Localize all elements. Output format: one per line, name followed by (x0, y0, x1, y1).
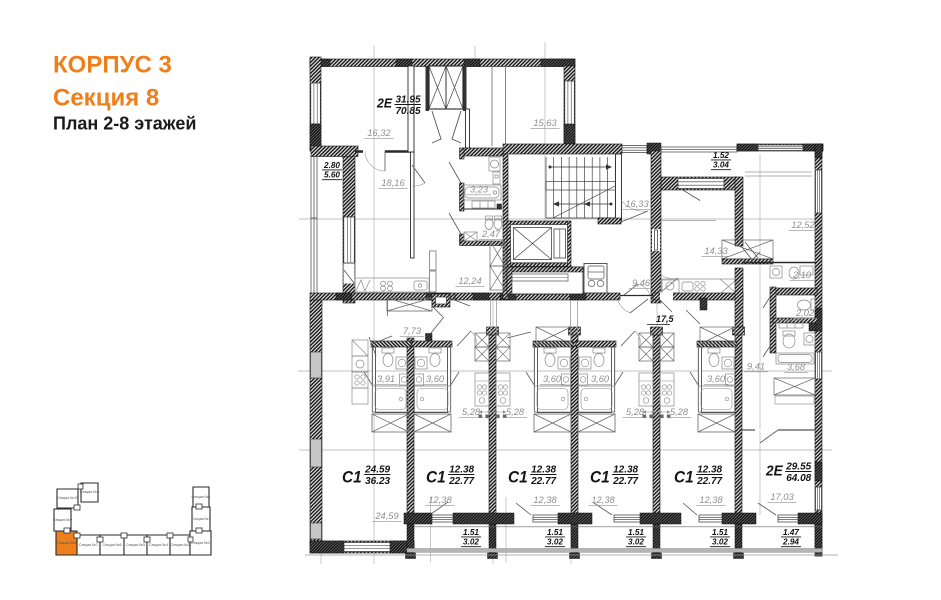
svg-text:3,60: 3,60 (543, 374, 562, 384)
svg-text:1.51: 1.51 (547, 528, 563, 537)
svg-text:3.02: 3.02 (628, 538, 644, 547)
svg-text:3.02: 3.02 (547, 538, 563, 547)
svg-text:12,24: 12,24 (458, 276, 481, 286)
svg-text:22.77: 22.77 (530, 476, 556, 487)
svg-text:2.94: 2.94 (782, 538, 799, 547)
svg-text:3.04: 3.04 (713, 161, 729, 170)
svg-text:3,91: 3,91 (377, 374, 395, 384)
svg-text:3.02: 3.02 (712, 538, 728, 547)
svg-text:9,46: 9,46 (632, 278, 651, 288)
svg-text:12.38: 12.38 (531, 464, 556, 475)
svg-text:1.51: 1.51 (463, 528, 479, 537)
svg-text:16,32: 16,32 (367, 128, 391, 138)
svg-text:КОРПУС 3: КОРПУС 3 (53, 52, 172, 79)
svg-text:С1: С1 (674, 467, 694, 486)
svg-text:14,33: 14,33 (704, 246, 728, 256)
svg-text:Секция №1: Секция №1 (191, 517, 210, 521)
svg-text:22.77: 22.77 (696, 476, 722, 487)
svg-text:12.38: 12.38 (449, 464, 474, 475)
svg-text:План 2-8 этажей: План 2-8 этажей (53, 114, 196, 134)
svg-text:24,59: 24,59 (374, 511, 398, 521)
svg-text:Секция №7: Секция №7 (79, 543, 98, 547)
svg-text:Секция №8: Секция №8 (57, 541, 76, 545)
svg-text:Секция №4: Секция №4 (149, 543, 168, 547)
svg-text:Секция №5: Секция №5 (126, 543, 145, 547)
svg-text:15,63: 15,63 (533, 118, 557, 128)
svg-text:Секция №9: Секция №9 (80, 490, 99, 494)
svg-text:12,38: 12,38 (699, 495, 723, 505)
svg-text:Секция №2: Секция №2 (191, 541, 210, 545)
svg-text:2Е: 2Е (765, 464, 784, 480)
svg-text:1.47: 1.47 (783, 528, 799, 537)
svg-text:3,60: 3,60 (707, 374, 726, 384)
svg-text:2,02: 2,02 (795, 308, 815, 318)
svg-text:Секция 8: Секция 8 (53, 85, 159, 112)
svg-text:2Е: 2Е (376, 95, 392, 110)
svg-text:31.95: 31.95 (396, 94, 421, 105)
svg-text:64.08: 64.08 (786, 473, 811, 484)
svg-text:3,23: 3,23 (470, 185, 489, 195)
svg-text:2,10: 2,10 (792, 270, 812, 280)
svg-text:12.38: 12.38 (697, 464, 722, 475)
svg-text:12,38: 12,38 (591, 495, 615, 505)
svg-text:2,47: 2,47 (481, 229, 501, 239)
svg-text:С1: С1 (426, 467, 446, 486)
svg-text:Секция №10: Секция №10 (57, 496, 78, 500)
svg-text:3.02: 3.02 (463, 538, 479, 547)
svg-text:36.23: 36.23 (365, 476, 390, 487)
svg-text:Секция №6: Секция №6 (102, 543, 121, 547)
svg-text:Секция №1: Секция №1 (191, 495, 210, 499)
svg-text:24.59: 24.59 (364, 464, 390, 475)
svg-text:12,38: 12,38 (533, 495, 557, 505)
svg-text:22.77: 22.77 (612, 476, 638, 487)
svg-text:2.80: 2.80 (323, 161, 340, 170)
svg-text:17,5: 17,5 (656, 314, 675, 324)
svg-text:5,28: 5,28 (670, 407, 689, 417)
svg-text:1.51: 1.51 (628, 528, 644, 537)
svg-text:3,60: 3,60 (591, 374, 610, 384)
svg-text:3,68: 3,68 (787, 362, 806, 372)
svg-text:12,52: 12,52 (791, 220, 815, 230)
svg-text:5,28: 5,28 (626, 407, 645, 417)
svg-text:С1: С1 (590, 467, 610, 486)
svg-text:29.55: 29.55 (785, 461, 811, 472)
svg-text:5.60: 5.60 (324, 171, 340, 180)
svg-text:7,73: 7,73 (403, 326, 422, 336)
svg-text:17,03: 17,03 (770, 492, 794, 502)
svg-text:Секция №9: Секция №9 (53, 518, 72, 522)
svg-text:22.77: 22.77 (448, 476, 474, 487)
svg-text:5,28: 5,28 (506, 407, 525, 417)
svg-text:1.51: 1.51 (712, 528, 728, 537)
svg-text:1.52: 1.52 (713, 151, 729, 160)
svg-text:9,41: 9,41 (747, 362, 765, 372)
svg-text:С1: С1 (342, 467, 362, 486)
svg-text:Секция №3: Секция №3 (170, 543, 189, 547)
svg-text:70.85: 70.85 (396, 106, 421, 117)
svg-text:12.38: 12.38 (613, 464, 638, 475)
svg-text:С1: С1 (508, 467, 528, 486)
svg-text:18,16: 18,16 (381, 178, 405, 188)
svg-text:5,28: 5,28 (462, 407, 481, 417)
svg-text:3,60: 3,60 (426, 374, 445, 384)
svg-text:16,33: 16,33 (625, 199, 649, 209)
svg-text:12,38: 12,38 (428, 495, 452, 505)
